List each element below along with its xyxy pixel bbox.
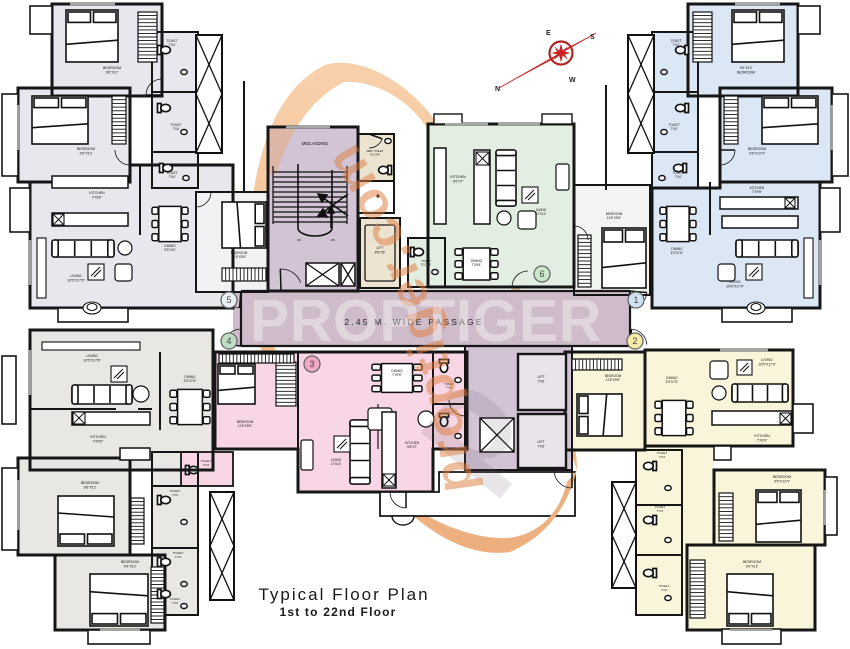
svg-text:BEDROOM9'6"X12'4": BEDROOM9'6"X12'4" <box>748 147 766 155</box>
svg-text:1: 1 <box>633 295 638 305</box>
svg-text:DINING5'3"X7'6": DINING5'3"X7'6" <box>184 375 197 383</box>
svg-text:DINING5'3"X7'6": DINING5'3"X7'6" <box>671 247 684 255</box>
svg-text:BEDROOM11'6"X9'6": BEDROOM11'6"X9'6" <box>606 212 623 220</box>
svg-text:MIDLANDING: MIDLANDING <box>302 141 328 146</box>
svg-text:BEDROOM11'6"X9'6": BEDROOM11'6"X9'6" <box>237 420 254 428</box>
svg-text:PROPTIGER: PROPTIGER <box>250 288 602 354</box>
svg-text:LIFT7'X6': LIFT7'X6' <box>537 375 545 383</box>
svg-text:7'X9'6": 7'X9'6" <box>472 263 482 267</box>
svg-text:5: 5 <box>226 295 231 305</box>
svg-text:BEDROOM11'6"X9'6": BEDROOM11'6"X9'6" <box>231 251 248 259</box>
svg-text:N: N <box>495 86 500 93</box>
svg-text:4: 4 <box>226 336 231 346</box>
svg-text:6: 6 <box>539 269 544 279</box>
svg-text:LIVING17'X10': LIVING17'X10' <box>536 208 547 216</box>
svg-text:1st to 22nd Floor: 1st to 22nd Floor <box>279 605 396 619</box>
svg-text:DINING5'3"X10': DINING5'3"X10' <box>164 244 176 252</box>
svg-text:BEDROOM11'6"X9'6": BEDROOM11'6"X9'6" <box>605 374 622 382</box>
svg-text:W: W <box>569 77 576 84</box>
svg-text:S: S <box>590 34 595 41</box>
svg-text:LIVING17'X10': LIVING17'X10' <box>331 458 342 466</box>
svg-text:2: 2 <box>632 336 637 346</box>
svg-text:UP: UP <box>297 238 301 242</box>
svg-text:DN: DN <box>331 238 335 242</box>
svg-text:3: 3 <box>309 359 314 369</box>
svg-text:DINING5'3"X7'6": DINING5'3"X7'6" <box>666 376 679 384</box>
svg-text:Typical Floor Plan: Typical Floor Plan <box>258 585 429 604</box>
svg-text:BEDROOM9'6"X12'4": BEDROOM9'6"X12'4" <box>773 475 791 483</box>
svg-text:E: E <box>546 30 551 37</box>
